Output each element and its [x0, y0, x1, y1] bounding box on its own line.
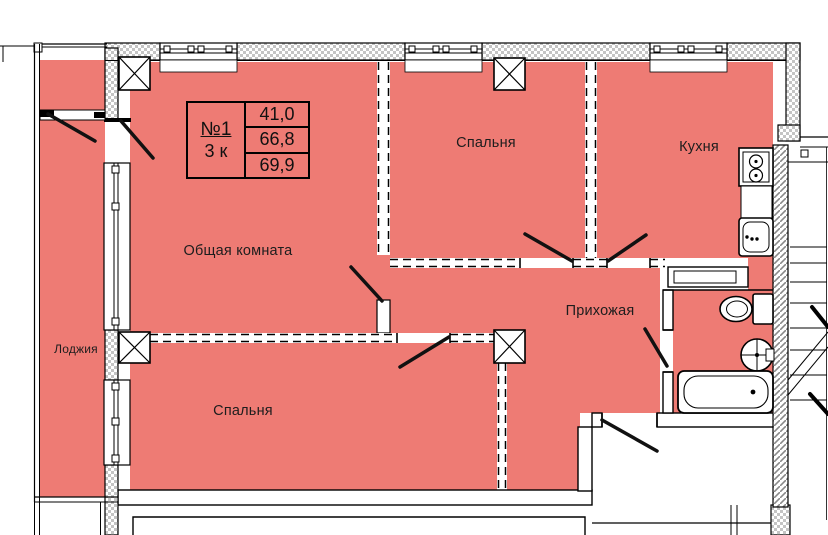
apartment-info-table: №1 3 к 41,0 66,8 69,9 [186, 101, 310, 179]
room-label-kitchen: Кухня [679, 139, 719, 155]
window-bedroom-top [405, 43, 482, 72]
living-area-value: 41,0 [246, 103, 308, 126]
bathtub-icon [678, 371, 773, 413]
window-living-top [160, 43, 237, 72]
room-label-loggia: Лоджия [54, 342, 98, 356]
corner-wall [578, 427, 592, 491]
usable-area-value: 66,8 [246, 126, 308, 151]
bottom-wall [118, 490, 592, 505]
window-kitchen [650, 43, 727, 72]
vent-shaft-icon [494, 330, 525, 363]
vent-shaft-icon [119, 57, 150, 90]
apartment-areas: 41,0 66,8 69,9 [246, 103, 308, 177]
room-label-living: Общая комната [184, 243, 293, 259]
washbasin-icon [741, 339, 774, 371]
apartment-number: №1 [201, 119, 232, 141]
stairwell-wall [773, 145, 788, 507]
partition-stub [377, 300, 390, 333]
stove-icon [739, 148, 773, 186]
vent-shaft-icon [494, 58, 525, 90]
room-label-bedroom-top: Спальня [456, 135, 516, 151]
kitchen-sink-icon [739, 218, 773, 256]
floorplan-canvas: Общая комната Спальня Кухня Прихожая Спа… [0, 0, 828, 535]
floorplan-drawing [0, 0, 828, 535]
entry-wall-right [657, 413, 775, 427]
vent-shaft-icon [119, 332, 150, 363]
room-label-hallway: Прихожая [566, 303, 635, 319]
kitchen-fixtures [739, 148, 773, 256]
bathroom-wall-lower [663, 372, 673, 413]
apartment-id-cell: №1 3 к [188, 103, 246, 177]
window-loggia-bedroom [104, 380, 130, 465]
bathroom-strip-area [748, 258, 773, 290]
total-area-value: 69,9 [246, 152, 308, 177]
bathroom-wall-upper [663, 290, 673, 330]
loggia-area [40, 60, 105, 497]
kitchen-counter [741, 186, 772, 218]
apartment-rooms-count: 3 к [205, 141, 228, 162]
room-label-bedroom-bottom: Спальня [213, 403, 273, 419]
bottom-bedroom-area [130, 413, 580, 490]
